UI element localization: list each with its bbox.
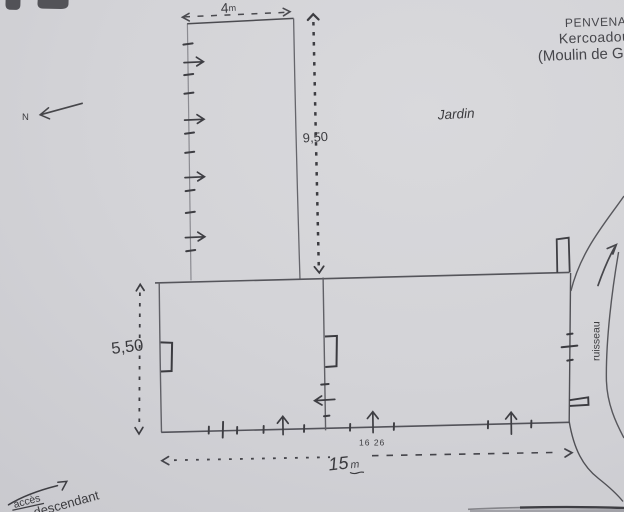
svg-text:16 26: 16 26 xyxy=(359,438,385,448)
svg-text:N: N xyxy=(22,112,29,123)
svg-text:Jardin: Jardin xyxy=(436,106,475,123)
svg-text:ruisseau: ruisseau xyxy=(591,321,603,361)
svg-text:Kercoadou: Kercoadou xyxy=(559,28,624,46)
svg-text:9,50: 9,50 xyxy=(302,129,328,146)
svg-text:(Moulin de Ga: (Moulin de Ga xyxy=(538,45,624,65)
